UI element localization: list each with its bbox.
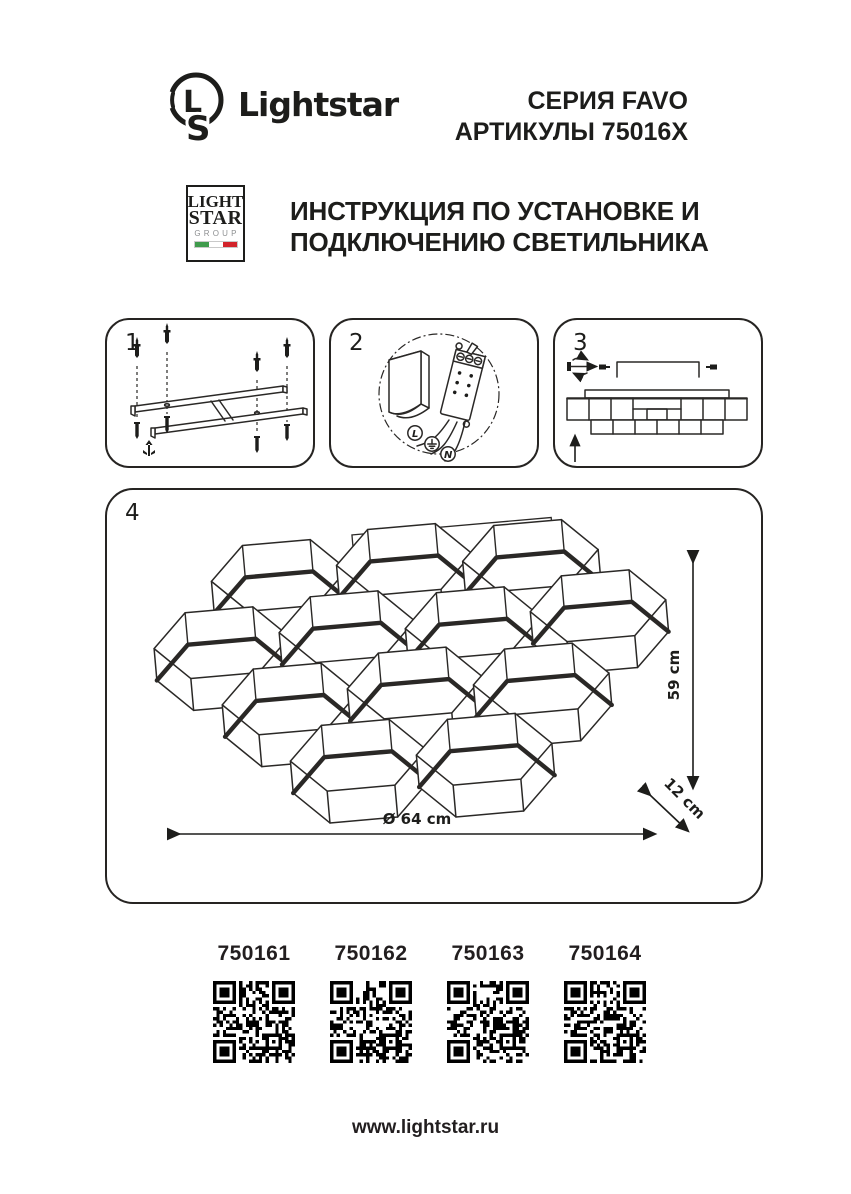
step-box-3: 3 (553, 318, 763, 468)
h-frame (131, 386, 307, 438)
qr-code (564, 981, 646, 1063)
screw-rotation-icon (567, 358, 596, 375)
lightstar-group-logo: LIGHT STAR GROUP (186, 185, 245, 262)
step-box-4: 4 59 cm 12 cm Ø 64 cm (105, 488, 763, 904)
phase-label: L (412, 429, 418, 440)
instruction-title-line1: ИНСТРУКЦИЯ ПО УСТАНОВКЕ И (290, 196, 709, 227)
article-block: 750164 (564, 942, 646, 1068)
wall-anchor-icon (134, 323, 291, 372)
article-block: 750162 (330, 942, 412, 1068)
honeycomb-lamp-diagram: 59 cm 12 cm Ø 64 cm (107, 490, 761, 902)
instruction-title: ИНСТРУКЦИЯ ПО УСТАНОВКЕ И ПОДКЛЮЧЕНИЮ СВ… (290, 196, 709, 258)
mounting-frame-diagram (107, 320, 313, 466)
cover-plate (389, 351, 429, 418)
svg-text:S: S (186, 109, 211, 149)
brand-wordmark: Lightstar (238, 85, 398, 124)
instruction-sheet: L S Lightstar СЕРИЯ FAVO АРТИКУЛЫ 75016X… (0, 0, 851, 1194)
depth-dimension-label: 12 cm (660, 774, 709, 823)
qr-code (330, 981, 412, 1063)
article-code: 750162 (330, 942, 412, 966)
qr-code (447, 981, 529, 1063)
step-box-1: 1 (105, 318, 315, 468)
article-block: 750161 (213, 942, 295, 1068)
footer-url: www.lightstar.ru (0, 1117, 851, 1139)
qr-code (213, 981, 295, 1063)
lightstar-bulb-icon: L S (166, 70, 228, 156)
lamp-side-profile (567, 390, 747, 434)
honeycomb-cells (145, 504, 683, 842)
anchor-up-icon (143, 440, 155, 456)
instruction-title-line2: ПОДКЛЮЧЕНИЮ СВЕТИЛЬНИКА (290, 227, 709, 258)
wire-labels: L N (408, 426, 455, 461)
wiring-diagram: L N (331, 320, 537, 466)
italy-flag-icon (194, 241, 238, 248)
diameter-dimension-label: Ø 64 cm (383, 810, 452, 828)
article-block: 750163 (447, 942, 529, 1068)
series-block: СЕРИЯ FAVO АРТИКУЛЫ 75016X (455, 86, 688, 148)
step-box-2: 2 (329, 318, 539, 468)
bracket (599, 362, 717, 377)
group-logo-group: GROUP (194, 229, 239, 238)
article-code: 750164 (564, 942, 646, 966)
diameter-dimension: Ø 64 cm (179, 810, 655, 834)
articles-subtitle: АРТИКУЛЫ 75016X (455, 117, 688, 148)
terminal-block-icon (438, 339, 489, 427)
group-logo-star: STAR (189, 209, 243, 227)
article-code: 750163 (447, 942, 529, 966)
depth-dimension: 12 cm (650, 774, 709, 831)
article-code: 750161 (213, 942, 295, 966)
fixture-attachment-diagram (555, 320, 761, 466)
neutral-label: N (444, 450, 453, 461)
series-title: СЕРИЯ FAVO (455, 86, 688, 117)
height-dimension-label: 59 cm (665, 650, 683, 701)
height-dimension: 59 cm (665, 562, 693, 788)
